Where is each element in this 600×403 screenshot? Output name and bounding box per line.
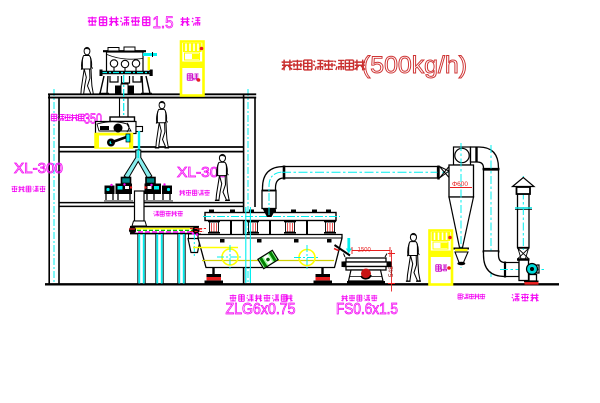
svg-text:1.5: 1.5	[153, 13, 174, 32]
svg-text:548: 548	[388, 266, 395, 277]
svg-text:(500kg/h): (500kg/h)	[362, 52, 467, 79]
svg-text:ZLG6x0.75: ZLG6x0.75	[226, 301, 296, 318]
svg-text:FS0.6x1.5: FS0.6x1.5	[336, 301, 398, 318]
svg-text:Φ600: Φ600	[452, 181, 468, 188]
svg-text:XL-300: XL-300	[14, 160, 63, 177]
svg-text:1500: 1500	[358, 248, 372, 254]
